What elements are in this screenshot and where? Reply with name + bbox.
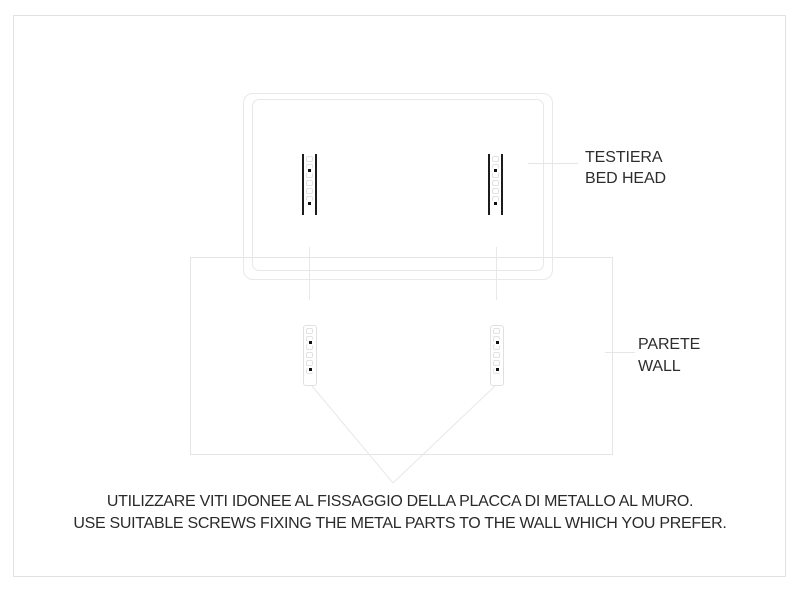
wall-label-en: WALL	[638, 356, 700, 378]
plate-edge-bar	[302, 154, 304, 215]
wall-outline	[190, 257, 613, 455]
note-line-english: USE SUITABLE SCREWS FIXING THE METAL PAR…	[0, 513, 800, 535]
wall-plate-right	[490, 325, 504, 386]
wall-label: PARETE WALL	[638, 334, 700, 378]
screw-dot	[494, 202, 497, 205]
screw-instruction-note: UTILIZZARE VITI IDONEE AL FISSAGGIO DELL…	[0, 491, 800, 535]
screw-dot	[308, 169, 311, 172]
note-line-italian: UTILIZZARE VITI IDONEE AL FISSAGGIO DELL…	[0, 491, 800, 513]
bedhead-plate-left	[302, 154, 317, 215]
plate-slot-column	[492, 156, 499, 204]
bedhead-label: TESTIERA BED HEAD	[585, 147, 666, 189]
plate-edge-bar	[488, 154, 490, 215]
bedhead-label-it: TESTIERA	[585, 147, 666, 168]
screw-dot	[494, 169, 497, 172]
screw-dot	[309, 368, 312, 371]
wall-plate-left	[303, 325, 317, 386]
bedhead-label-en: BED HEAD	[585, 168, 666, 189]
screw-dot	[496, 341, 499, 344]
screw-dot	[309, 341, 312, 344]
assembly-instruction-sheet: TESTIERA BED HEAD PARETE WALL UTILIZZARE…	[0, 0, 800, 590]
screw-dot	[308, 202, 311, 205]
wall-label-it: PARETE	[638, 334, 700, 356]
plate-edge-bar	[315, 154, 317, 215]
plate-slot-column	[306, 156, 313, 204]
screw-dot	[496, 368, 499, 371]
plate-edge-bar	[501, 154, 503, 215]
bedhead-plate-right	[488, 154, 503, 215]
